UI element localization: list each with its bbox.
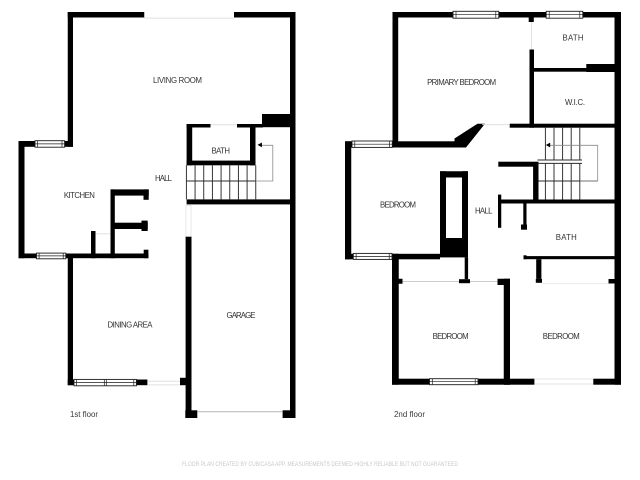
svg-text:FLOOR PLAN CREATED BY CUBICASA: FLOOR PLAN CREATED BY CUBICASA APP. MEAS… bbox=[182, 461, 458, 468]
svg-text:BATH: BATH bbox=[212, 146, 231, 155]
svg-text:BEDROOM: BEDROOM bbox=[543, 332, 580, 341]
svg-text:KITCHEN: KITCHEN bbox=[64, 191, 95, 200]
svg-text:BATH: BATH bbox=[563, 34, 584, 43]
svg-text:DINING AREA: DINING AREA bbox=[108, 320, 154, 329]
svg-text:PRIMARY BEDROOM: PRIMARY BEDROOM bbox=[427, 78, 496, 87]
svg-text:1st floor: 1st floor bbox=[70, 409, 98, 419]
svg-text:HALL: HALL bbox=[155, 174, 173, 183]
svg-text:BATH: BATH bbox=[556, 233, 577, 242]
svg-text:HALL: HALL bbox=[475, 206, 493, 215]
svg-text:BEDROOM: BEDROOM bbox=[433, 332, 469, 341]
svg-text:2nd floor: 2nd floor bbox=[394, 409, 425, 419]
svg-text:GARAGE: GARAGE bbox=[227, 311, 256, 320]
svg-text:LIVING ROOM: LIVING ROOM bbox=[153, 76, 202, 85]
svg-text:W.I.C.: W.I.C. bbox=[565, 98, 585, 107]
svg-text:BEDROOM: BEDROOM bbox=[380, 200, 416, 209]
